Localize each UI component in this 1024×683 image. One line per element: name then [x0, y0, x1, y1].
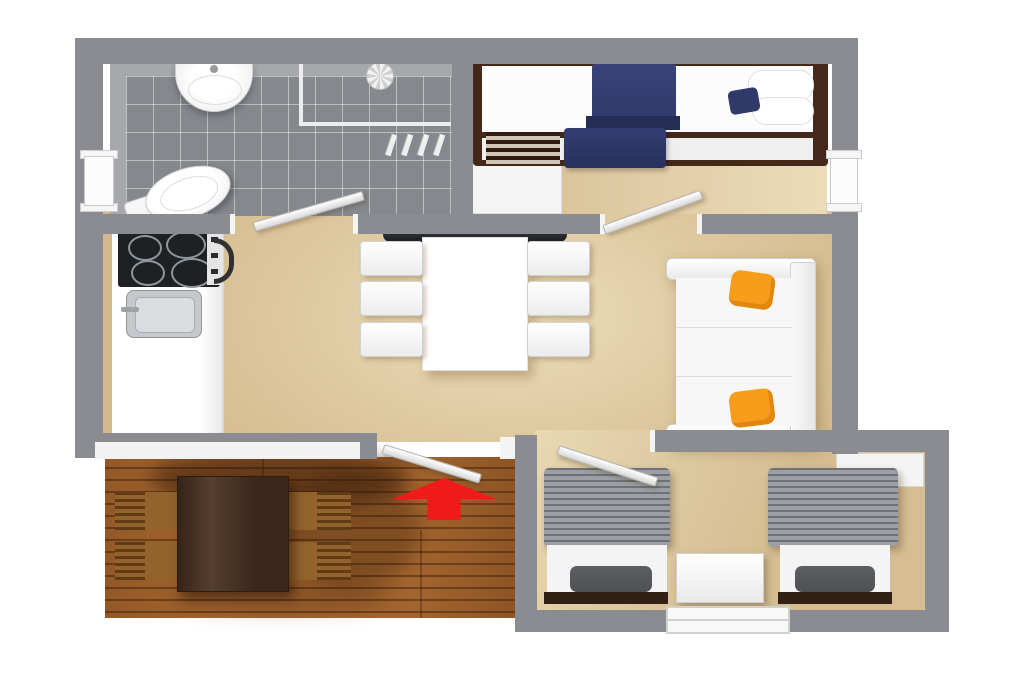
terrace-chair-back	[317, 492, 351, 530]
interior-wall	[95, 214, 235, 234]
terrace-chair-seat	[145, 492, 177, 530]
sink-basin	[135, 297, 195, 333]
dining-chair	[527, 281, 590, 316]
window-right	[830, 158, 858, 204]
basin-bowl	[188, 75, 242, 105]
bathroom-bedroom-divider-wall	[452, 60, 473, 216]
terrace-chair-back	[115, 492, 145, 530]
terrace-chair-seat	[145, 542, 177, 580]
kitchen-sink	[126, 290, 202, 338]
bed-blanket	[768, 468, 898, 546]
window-sill	[826, 203, 862, 212]
single-bed	[544, 468, 670, 604]
sofa-seam	[676, 327, 792, 328]
window-left	[84, 156, 114, 206]
terrace-table	[177, 476, 289, 592]
bed-ladder-slats	[486, 132, 560, 164]
toilet-seat	[156, 169, 223, 218]
orange-cushion	[728, 269, 777, 311]
dining-chair	[360, 241, 423, 276]
bed-footboard	[544, 592, 668, 604]
entrance-door-post	[360, 433, 377, 459]
deck-plank-joint	[420, 530, 422, 618]
floor-plan	[0, 0, 1024, 683]
dining-chair	[527, 241, 590, 276]
window-mullion	[668, 619, 788, 621]
single-bed	[768, 468, 898, 604]
dining-chair	[360, 281, 423, 316]
sofa	[666, 256, 816, 446]
cooktop-burner	[128, 235, 162, 261]
cooktop-burner	[166, 231, 206, 259]
twin-bedroom-wall-left	[515, 435, 537, 632]
dining-chair	[527, 322, 590, 357]
interior-wall	[353, 214, 605, 234]
sofa-seam	[676, 376, 792, 377]
navy-blanket-drape	[564, 128, 666, 168]
bed-pillow	[795, 566, 875, 592]
double-bed	[473, 60, 828, 166]
shower-pipe	[299, 62, 303, 126]
basin-faucet-icon	[210, 65, 218, 73]
cooktop	[118, 227, 220, 287]
dining-table	[422, 237, 528, 371]
bed-pillow	[570, 566, 652, 592]
navy-cushion	[727, 87, 761, 116]
entrance-jamb	[500, 437, 515, 459]
sofa-backrest	[790, 262, 816, 440]
twin-bedroom-wall-top	[650, 430, 947, 452]
twin-bedroom-wall-right	[925, 430, 949, 632]
interior-wall	[697, 214, 834, 234]
bedroom-cabinet	[470, 164, 562, 214]
bed-footboard	[778, 592, 892, 604]
pillow	[752, 97, 814, 125]
terrace-chair-back	[317, 542, 351, 580]
nightstand	[676, 553, 764, 603]
dining-chair	[360, 322, 423, 357]
shower-pipe	[299, 122, 451, 126]
sink-faucet	[121, 307, 139, 312]
terrace-chair-back	[115, 542, 145, 580]
shower-head-icon	[366, 62, 394, 90]
cooktop-burner	[131, 260, 165, 286]
orange-cushion	[728, 387, 776, 428]
outer-wall-bottom	[95, 433, 360, 459]
outer-wall-right	[832, 38, 858, 454]
outer-wall-left	[75, 38, 103, 458]
window-twin-bedroom	[666, 606, 790, 634]
